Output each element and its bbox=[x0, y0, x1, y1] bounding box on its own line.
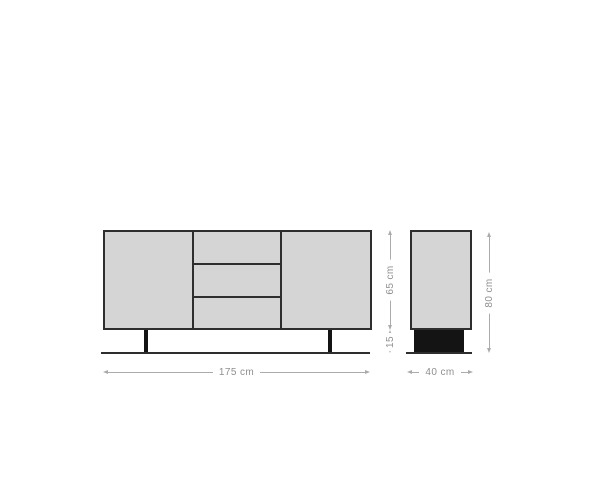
arrow-up-icon bbox=[388, 230, 392, 235]
front-door-divider-left bbox=[192, 230, 194, 330]
side-view-plinth bbox=[414, 330, 464, 352]
front-drawer-divider-bottom bbox=[194, 296, 280, 298]
dimension-body-height: 65 cm bbox=[385, 230, 396, 330]
front-right-leg bbox=[328, 330, 332, 353]
side-view-body bbox=[410, 230, 472, 330]
dimension-leg-height: 15 bbox=[385, 330, 396, 353]
dimension-leg-height-label: 15 bbox=[385, 333, 397, 351]
side-ground-line bbox=[406, 352, 472, 354]
front-drawer-divider-top bbox=[194, 263, 280, 265]
dimension-body-height-label: 65 cm bbox=[385, 259, 397, 300]
front-left-leg bbox=[144, 330, 148, 353]
dimension-depth-label: 40 cm bbox=[407, 367, 473, 379]
front-ground-line bbox=[101, 352, 370, 354]
arrow-down-icon bbox=[487, 348, 491, 353]
dimension-total-height: 80 cm bbox=[484, 232, 495, 353]
dimension-width-label: 175 cm bbox=[103, 367, 370, 379]
arrow-up-icon bbox=[487, 232, 491, 237]
front-view-body bbox=[103, 230, 372, 330]
dimension-width: 175 cm bbox=[103, 367, 370, 378]
front-door-divider-right bbox=[280, 230, 282, 330]
dimension-total-height-label: 80 cm bbox=[484, 272, 496, 313]
dimension-depth: 40 cm bbox=[407, 367, 473, 378]
sideboard-dimension-diagram: 175 cm 65 cm 15 40 cm 80 cm bbox=[0, 0, 600, 500]
